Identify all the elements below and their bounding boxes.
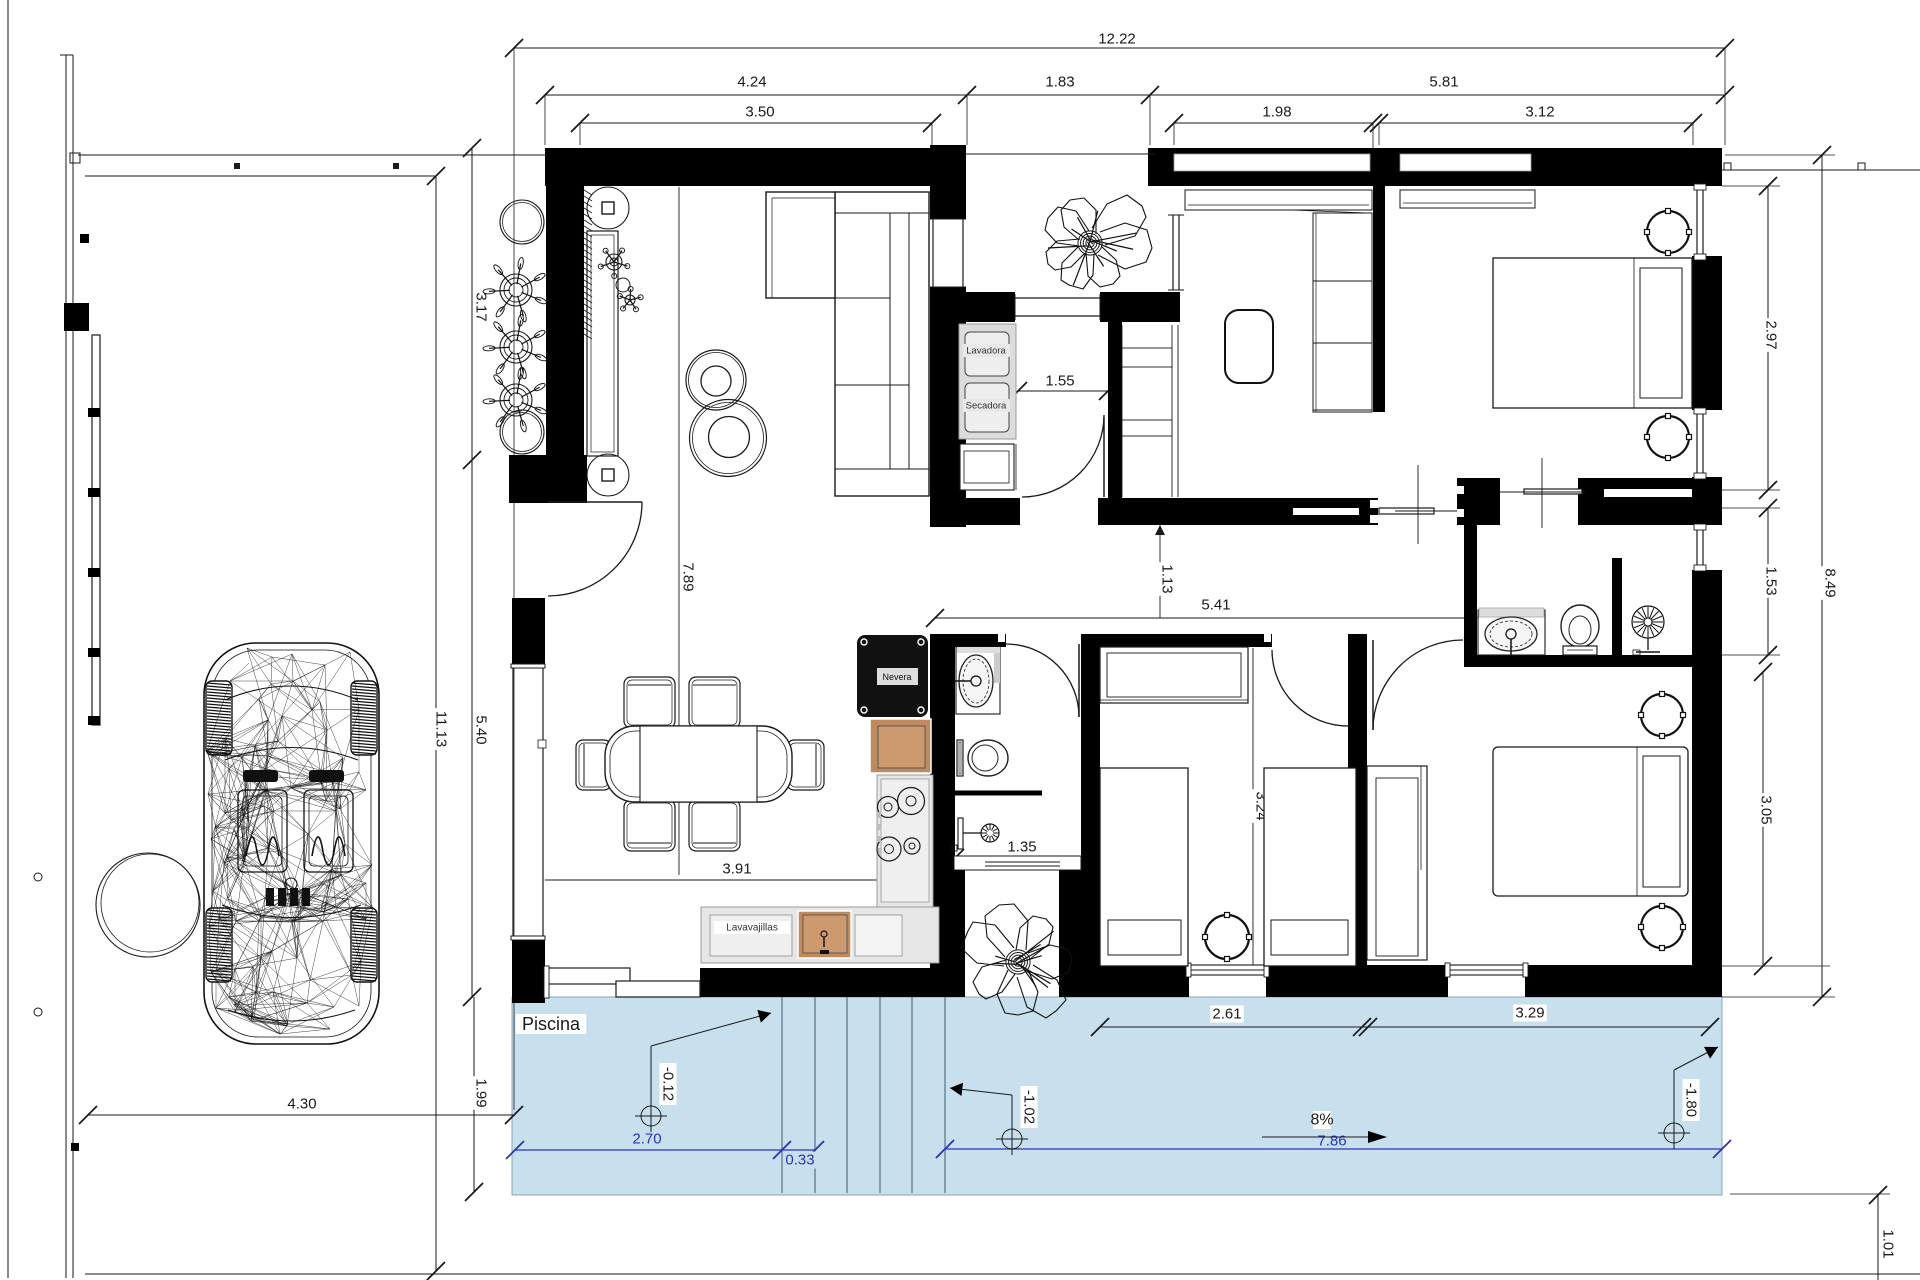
svg-text:3.50: 3.50 (745, 104, 774, 121)
svg-text:-1.02: -1.02 (1021, 1090, 1038, 1124)
svg-text:1.01: 1.01 (1880, 1229, 1897, 1258)
svg-text:7.89: 7.89 (680, 562, 697, 591)
svg-text:12.22: 12.22 (1098, 31, 1136, 48)
svg-text:1.55: 1.55 (1045, 373, 1074, 390)
svg-text:7.86: 7.86 (1317, 1133, 1346, 1150)
svg-text:1.53: 1.53 (1763, 566, 1780, 595)
svg-text:Secadora: Secadora (966, 401, 1007, 412)
svg-text:Piscina: Piscina (522, 1014, 581, 1034)
svg-text:0.33: 0.33 (785, 1152, 814, 1169)
svg-text:8.49: 8.49 (1822, 568, 1839, 597)
svg-text:1.99: 1.99 (473, 1078, 490, 1107)
svg-text:1.83: 1.83 (1045, 74, 1074, 91)
svg-text:4.24: 4.24 (737, 74, 766, 91)
svg-text:4.30: 4.30 (287, 1096, 316, 1113)
svg-text:11.13: 11.13 (433, 711, 450, 747)
svg-text:5.40: 5.40 (473, 715, 490, 744)
svg-text:2.97: 2.97 (1763, 320, 1780, 349)
svg-text:3.05: 3.05 (1758, 795, 1775, 824)
svg-text:-0.12: -0.12 (660, 1067, 677, 1101)
svg-text:1.13: 1.13 (1159, 564, 1176, 593)
svg-text:Nevera: Nevera (882, 672, 911, 682)
svg-text:3.17: 3.17 (473, 292, 490, 321)
svg-text:-1.80: -1.80 (1683, 1083, 1700, 1117)
svg-text:1.98: 1.98 (1262, 104, 1291, 121)
svg-text:Lavadora: Lavadora (966, 346, 1006, 357)
svg-text:5.41: 5.41 (1201, 597, 1230, 614)
svg-text:2.70: 2.70 (632, 1131, 661, 1148)
svg-text:2.61: 2.61 (1212, 1006, 1241, 1023)
svg-text:3.91: 3.91 (722, 861, 751, 878)
svg-text:1.35: 1.35 (1007, 839, 1036, 856)
svg-text:3.29: 3.29 (1515, 1005, 1544, 1022)
svg-text:5.81: 5.81 (1429, 74, 1458, 91)
svg-text:8%: 8% (1310, 1112, 1333, 1129)
svg-text:3.12: 3.12 (1525, 104, 1554, 121)
svg-text:Lavavajillas: Lavavajillas (726, 923, 778, 934)
